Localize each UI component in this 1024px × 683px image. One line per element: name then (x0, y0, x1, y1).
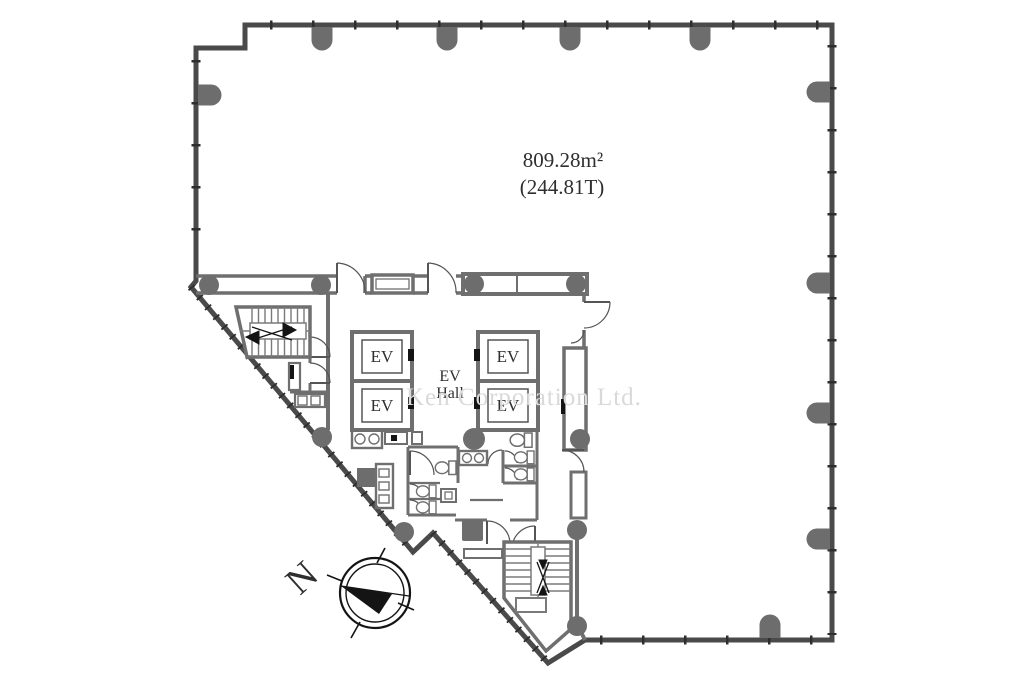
column (311, 275, 331, 295)
staircase-upper (236, 307, 310, 357)
column (567, 520, 587, 540)
pipe-shaft-filled (357, 468, 375, 487)
toilet (416, 501, 436, 514)
column (312, 27, 333, 51)
stair-landing (516, 598, 546, 612)
column (464, 274, 484, 294)
ev-door-jamb (474, 349, 480, 361)
column (560, 27, 581, 51)
column (807, 82, 831, 103)
ev-label: EV (497, 347, 520, 366)
shaft-door-jamb (290, 365, 294, 379)
ev-hall-label-line2: Hall (436, 385, 464, 402)
column (566, 274, 586, 294)
toilet (416, 485, 436, 498)
compass-needle (341, 586, 392, 614)
shaft-door-jamb (561, 399, 565, 414)
ev-door-jamb (408, 397, 414, 409)
service-fixture-dark (391, 435, 397, 441)
toilet (514, 468, 534, 481)
ev-door-jamb (474, 397, 480, 409)
toilet (514, 451, 534, 464)
north-label: N (278, 553, 327, 603)
ev-label: EV (371, 347, 394, 366)
toilet (435, 461, 456, 475)
ev-hall-label-line1: EV (439, 368, 461, 385)
column (807, 403, 831, 424)
staircase-lower (504, 542, 571, 651)
column (437, 27, 458, 51)
ev-label: EV (497, 396, 520, 415)
column (567, 616, 587, 636)
column (807, 273, 831, 294)
toilet (510, 433, 532, 447)
ev-door-jamb (408, 349, 414, 361)
column (198, 85, 222, 106)
column (807, 529, 831, 550)
column (394, 522, 414, 542)
area-label-m2: 809.28m² (523, 148, 603, 172)
floorplan-page: N 809.28m² (244.81T) EV EV EV EV EV Hall… (0, 0, 1024, 683)
column (463, 428, 485, 450)
floorplan-drawing: N 809.28m² (244.81T) EV EV EV EV EV Hall (0, 0, 1024, 683)
compass: N (278, 548, 414, 638)
column (312, 427, 332, 447)
column (690, 27, 711, 51)
ev-label: EV (371, 396, 394, 415)
area-label-tsubo: (244.81T) (520, 175, 605, 199)
column (199, 275, 219, 295)
column (570, 429, 590, 449)
pipe-shaft-filled (462, 520, 483, 541)
column (760, 615, 781, 639)
